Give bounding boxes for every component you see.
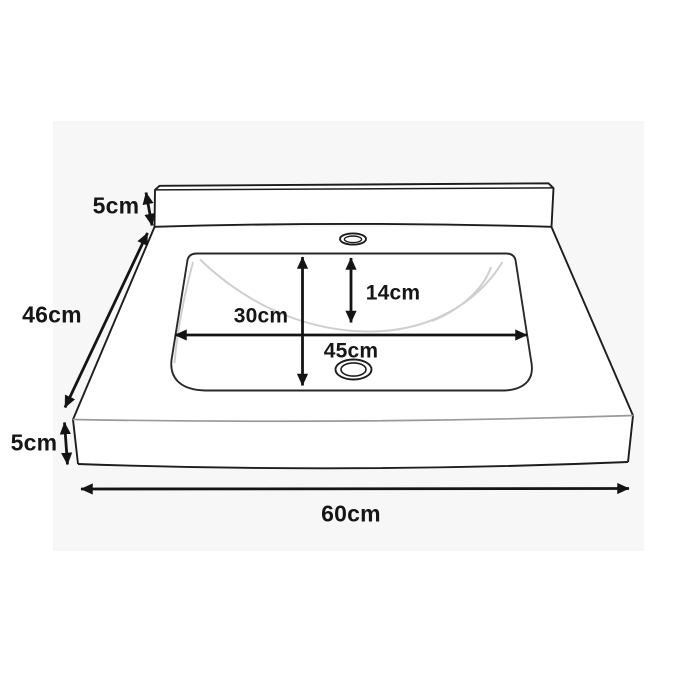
- dim-label-bowl-front-to-back: 30cm: [234, 306, 289, 327]
- dim-label-bowl-width: 45cm: [324, 341, 379, 362]
- faucet-hole: [340, 233, 366, 244]
- dim-label-bowl-depth: 14cm: [366, 283, 421, 304]
- dim-label-backsplash-height: 5cm: [93, 195, 140, 218]
- dim-label-overall-depth: 46cm: [22, 304, 82, 327]
- drain: [336, 360, 372, 380]
- dim-label-slab-thickness: 5cm: [11, 432, 58, 455]
- dim-arrow-overall-width: [81, 489, 629, 490]
- countertop-apron-face: [73, 416, 633, 469]
- dim-label-overall-width: 60cm: [321, 503, 381, 526]
- sink-dimension-diagram: 5cm 46cm 5cm 60cm 30cm 14cm 45cm: [0, 0, 700, 700]
